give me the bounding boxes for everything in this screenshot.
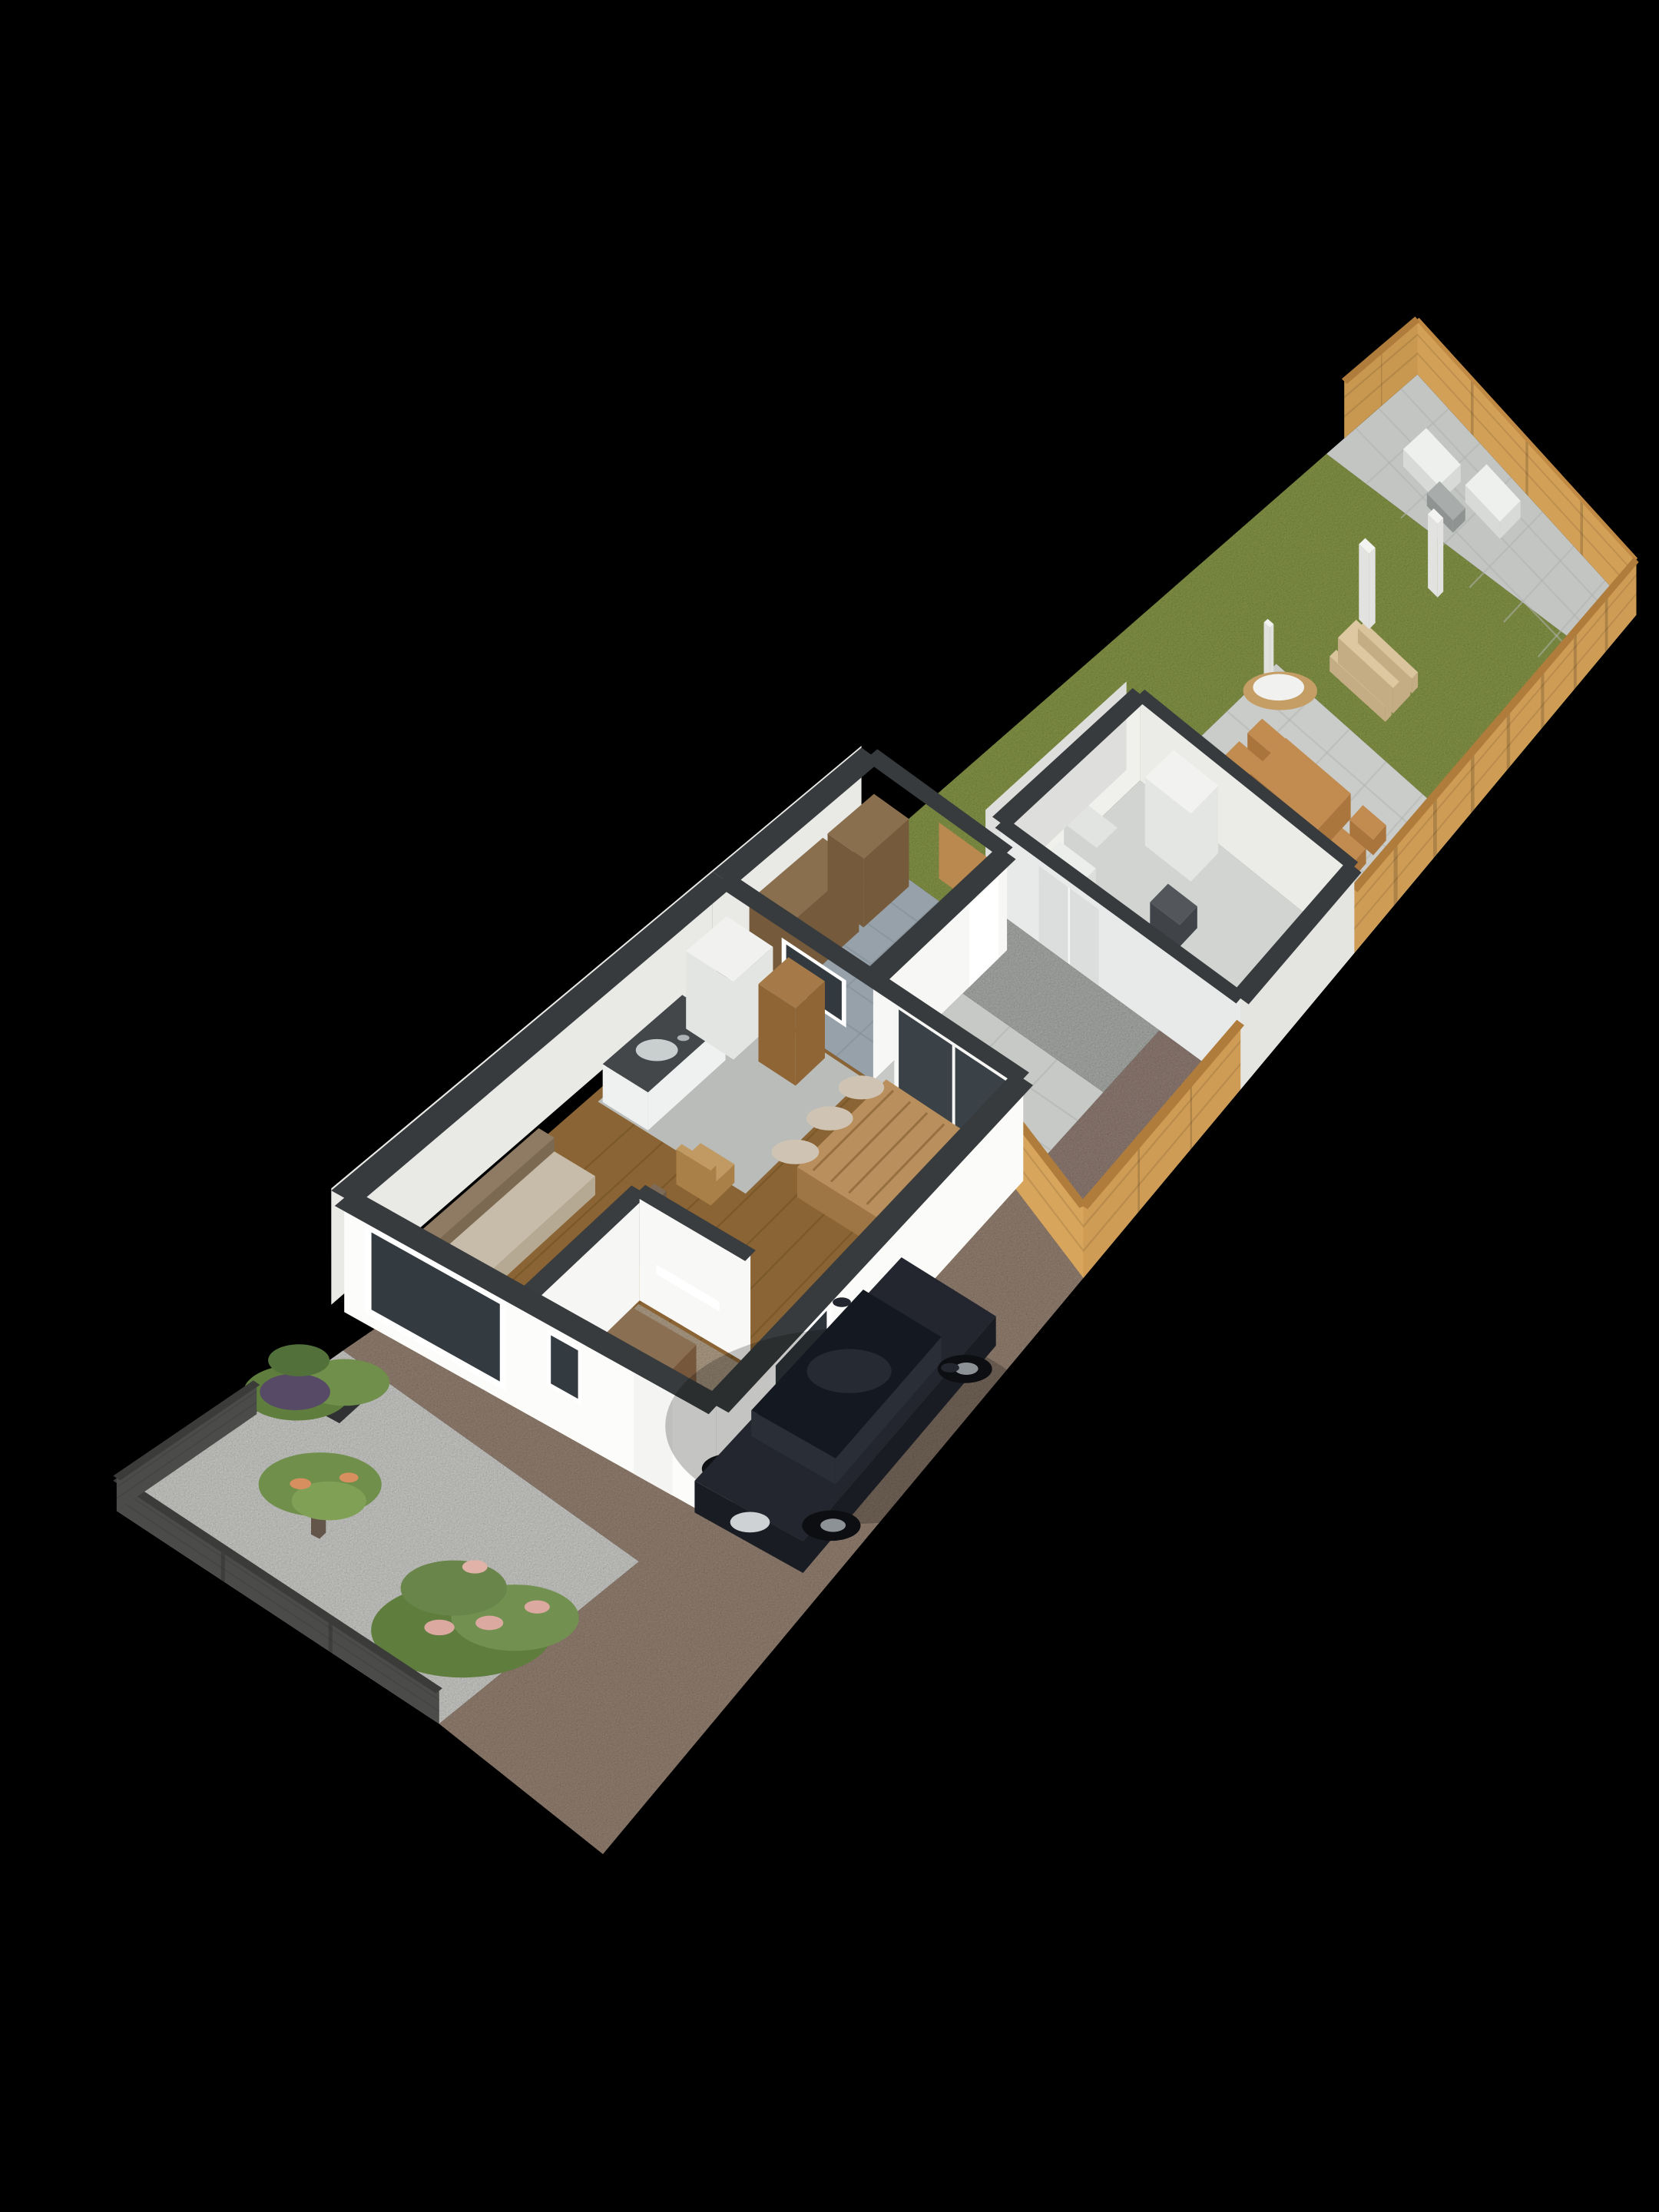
car-license-plate bbox=[730, 1512, 770, 1533]
rose-bush-3 bbox=[401, 1561, 507, 1616]
car-mirror-nw bbox=[833, 1297, 851, 1306]
laundry-pole-1-face-sw bbox=[1428, 514, 1438, 598]
car-roof bbox=[807, 1349, 892, 1392]
dining-chair-3 bbox=[839, 1075, 885, 1099]
se-fence-upper-post bbox=[1471, 749, 1475, 813]
se-fence-lower-post bbox=[1190, 1079, 1192, 1150]
rose-bloom-2 bbox=[475, 1616, 503, 1631]
shed-door-frame bbox=[1068, 887, 1070, 965]
rose-bloom-3 bbox=[525, 1601, 550, 1614]
floorplan-viewport bbox=[0, 0, 1659, 2212]
se-fence-upper-post bbox=[1605, 593, 1608, 653]
planter-foliage-purple bbox=[260, 1373, 330, 1410]
laundry-pole-2-face-sw bbox=[1359, 545, 1369, 630]
se-fence-upper-post bbox=[1507, 707, 1510, 770]
laundry-pole-1-face-se bbox=[1438, 518, 1444, 598]
dining-chair-2 bbox=[806, 1106, 853, 1130]
kitchen-faucet bbox=[677, 1035, 690, 1041]
rose-bloom-1 bbox=[424, 1620, 454, 1635]
small-tree-fruit-1 bbox=[290, 1479, 311, 1489]
planter-foliage-3 bbox=[268, 1344, 329, 1376]
kitchen-sink bbox=[636, 1039, 678, 1061]
small-tree-fruit-2 bbox=[339, 1472, 359, 1482]
se-fence-lower-post bbox=[1137, 1141, 1140, 1213]
se-fence-upper-post bbox=[1541, 667, 1544, 730]
car-mirror-se bbox=[941, 1363, 959, 1373]
back-fence-post bbox=[1525, 438, 1528, 496]
floorplan-svg bbox=[0, 0, 1659, 2212]
dining-chair-1 bbox=[772, 1140, 820, 1164]
kitchen-chair-back-face-se bbox=[710, 1165, 716, 1205]
back-fence-post bbox=[1581, 498, 1584, 556]
back-fence-post bbox=[1471, 378, 1474, 436]
nw-fence-segment-post bbox=[1381, 349, 1382, 406]
egg-chair-cushion bbox=[1253, 674, 1304, 701]
rose-bloom-4 bbox=[462, 1560, 488, 1573]
laundry-pole-2-face-se bbox=[1369, 548, 1376, 629]
car-hub-rear bbox=[820, 1518, 846, 1532]
sliding-door-mullion bbox=[952, 1045, 955, 1131]
se-fence-upper-post bbox=[1574, 629, 1577, 690]
